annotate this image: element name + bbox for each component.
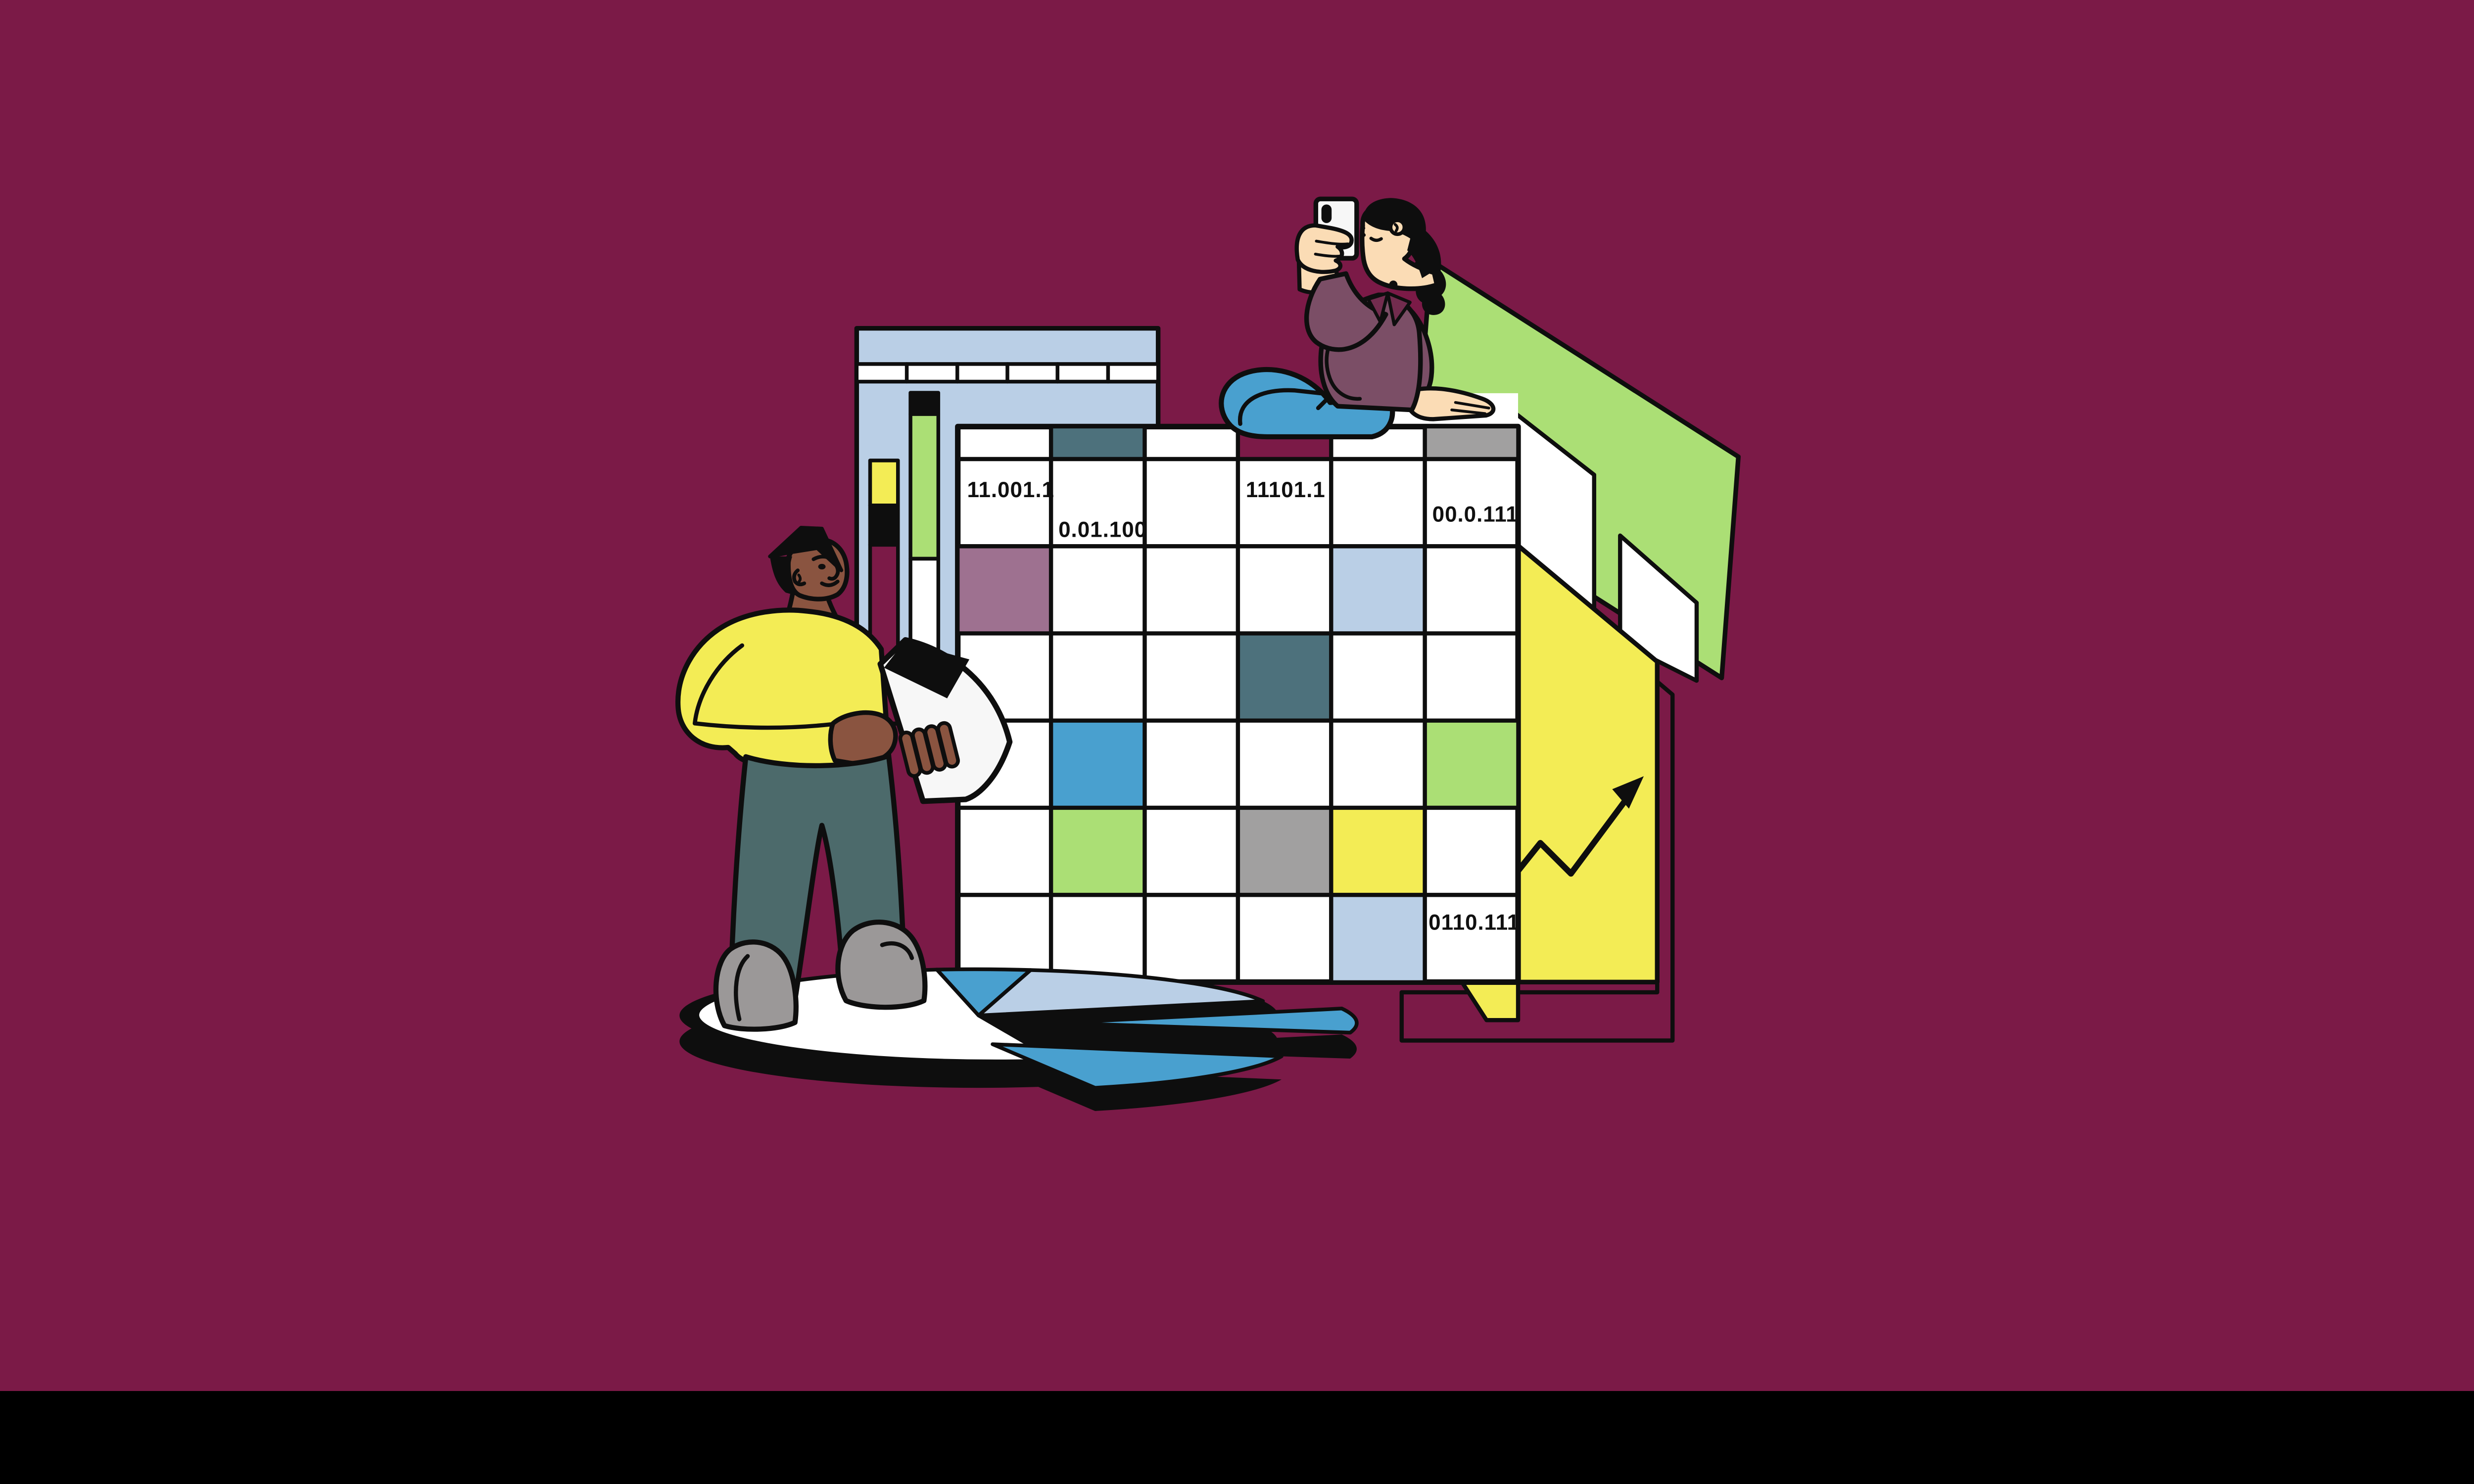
cell-green-r5 <box>1051 808 1144 895</box>
phone-camera-icon <box>1322 204 1332 223</box>
cell-label-r6c6: 0110.111 <box>1428 910 1520 934</box>
spreadsheet-grid: 11.001.1 0.01.100 11101.1 00.0.111 0110.… <box>958 426 1520 982</box>
cell-yellow-r5 <box>1331 808 1425 895</box>
man-ear-inner <box>799 575 800 581</box>
cell-label-r1c1: 11.001.1 <box>967 478 1054 502</box>
cell-label-r1c4: 11101.1 <box>1246 478 1326 502</box>
illustration-canvas: 11.001.1 0.01.100 11101.1 00.0.111 0110.… <box>0 0 2474 1391</box>
woman-collar-button <box>1389 280 1397 289</box>
man-eye <box>818 564 826 569</box>
cell-green-r4 <box>1425 721 1518 808</box>
man-shoe-left <box>716 942 796 1029</box>
bar-a-segment-yellow <box>870 461 898 506</box>
woman-eye <box>1374 220 1380 225</box>
man-shoe-right <box>838 922 925 1007</box>
cell-gray-r5 <box>1238 808 1331 895</box>
cell-gray-top <box>1425 426 1518 459</box>
cell-label-r1c2: 0.01.100 <box>1058 517 1147 542</box>
cell-teal-r3 <box>1238 633 1331 720</box>
bar-b-segment-green <box>910 414 938 558</box>
cell-teal-top <box>1051 426 1144 459</box>
cell-lightblue-r6 <box>1331 895 1425 982</box>
cell-mauve <box>958 546 1051 633</box>
bar-b-segment-black <box>910 393 938 414</box>
woman-nose <box>1362 228 1364 235</box>
cell-blue-r4 <box>1051 721 1144 808</box>
cell-label-r1c6: 00.0.111 <box>1432 503 1519 527</box>
cell-lightblue-r2 <box>1331 546 1425 633</box>
bar-a-segment-black <box>870 506 898 545</box>
